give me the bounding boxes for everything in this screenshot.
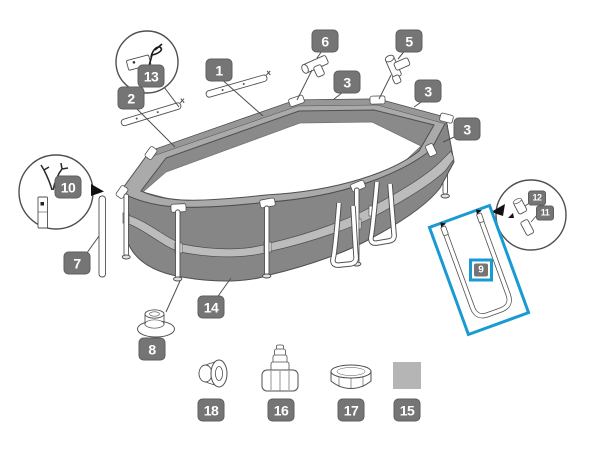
part-label-3-a: 3 bbox=[334, 71, 361, 94]
part-label-2: 2 bbox=[118, 87, 145, 110]
pool-parts-diagram: 1 2 3 3 3 5 6 7 8 10 13 14 11 12 18 16 1… bbox=[0, 0, 600, 450]
part-label-7: 7 bbox=[64, 252, 91, 275]
filter-cap-17 bbox=[331, 365, 371, 389]
part-label-6: 6 bbox=[312, 30, 339, 53]
part-label-3-b: 3 bbox=[415, 80, 442, 103]
repair-patch-15 bbox=[393, 362, 421, 389]
hose-adapter-16 bbox=[262, 345, 298, 391]
part-label-11: 11 bbox=[536, 206, 554, 221]
part-label-10: 10 bbox=[55, 176, 82, 199]
part-label-14: 14 bbox=[198, 296, 225, 319]
t-connector-6 bbox=[300, 55, 332, 82]
part-label-9: 9 bbox=[474, 264, 488, 277]
part-label-3-c: 3 bbox=[454, 118, 481, 141]
foot-cap-8 bbox=[138, 281, 181, 337]
drain-valve-18 bbox=[199, 360, 227, 387]
part-label-18: 18 bbox=[198, 399, 225, 422]
t-connector-5 bbox=[383, 49, 415, 84]
part-label-8: 8 bbox=[139, 338, 166, 361]
vertical-post-7 bbox=[99, 196, 106, 277]
part-label-15: 15 bbox=[394, 399, 421, 422]
diagram-canvas bbox=[0, 0, 600, 450]
part-label-17: 17 bbox=[338, 399, 365, 422]
part-label-5: 5 bbox=[396, 30, 423, 53]
pointer-arrow bbox=[91, 184, 104, 196]
part-label-13: 13 bbox=[138, 65, 165, 88]
part-label-12: 12 bbox=[528, 191, 546, 206]
part-label-16: 16 bbox=[268, 399, 295, 422]
part-label-1: 1 bbox=[206, 59, 233, 82]
part-label-9-highlight: 9 bbox=[469, 259, 493, 282]
